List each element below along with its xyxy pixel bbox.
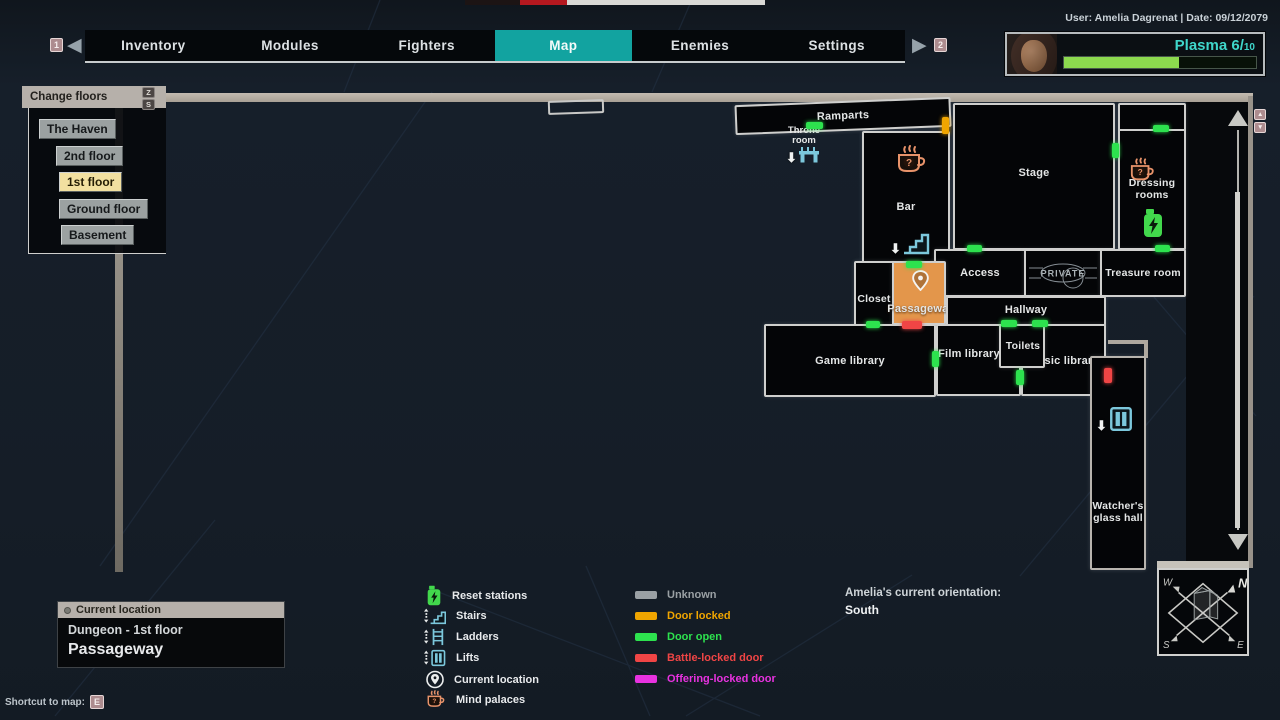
throne-room-transit-icon: ⬇ bbox=[786, 146, 822, 164]
plasma-label: Plasma bbox=[1175, 37, 1228, 54]
floor-keys: Z S bbox=[142, 87, 155, 110]
room-private: PRIVATE bbox=[1024, 249, 1102, 297]
legend-reset-stations: Reset stations bbox=[426, 585, 527, 606]
scroll-up-arrow[interactable] bbox=[1228, 110, 1248, 126]
map-shortcut-hint: Shortcut to map: E bbox=[5, 695, 104, 709]
room-bar: ? Bar ⬇ bbox=[862, 131, 950, 263]
private-logo: PRIVATE bbox=[1029, 256, 1097, 290]
door-battle-locked-marker bbox=[902, 321, 922, 329]
plasma-counter: Plasma 6/10 bbox=[1175, 37, 1255, 54]
legend-battle-locked-door: Battle-locked door bbox=[635, 652, 764, 664]
tab-enemies[interactable]: Enemies bbox=[632, 30, 769, 61]
legend-ladders: Ladders bbox=[424, 628, 499, 646]
room-dressing-rooms: ? Dressing rooms bbox=[1118, 103, 1186, 250]
dressing-divider-wall bbox=[1120, 129, 1184, 131]
legend-stairs: Stairs bbox=[424, 607, 487, 625]
avatar-shade bbox=[1007, 34, 1057, 74]
location-floor-text: Dungeon - 1st floor bbox=[68, 623, 274, 637]
floor-button-the-haven[interactable]: The Haven bbox=[39, 119, 116, 139]
legend-label: Door open bbox=[667, 631, 722, 643]
map-east-wall bbox=[1248, 96, 1253, 568]
door-swatch bbox=[635, 675, 657, 683]
legend-door-locked: Door locked bbox=[635, 610, 731, 622]
floor-button-basement[interactable]: Basement bbox=[61, 225, 134, 245]
compass-rose-icon: N E S W bbox=[1159, 570, 1247, 654]
avatar bbox=[1007, 34, 1057, 74]
sliver-dark-segment bbox=[465, 0, 520, 5]
orientation-label: Amelia's current orientation: bbox=[845, 587, 1001, 599]
door-open-marker bbox=[1032, 320, 1048, 327]
room-label: Access bbox=[936, 267, 1024, 280]
down-arrow-icon: ⬇ bbox=[1096, 419, 1107, 432]
room-access: Access bbox=[934, 249, 1026, 297]
door-locked-marker bbox=[942, 117, 949, 134]
private-text: PRIVATE bbox=[1041, 269, 1086, 279]
scroll-up-key-badge: ▲ bbox=[1254, 109, 1266, 120]
stairs-icon bbox=[424, 607, 446, 625]
compass-e: E bbox=[1237, 640, 1244, 651]
room-label: Hallway bbox=[948, 304, 1104, 317]
door-open-marker bbox=[1155, 245, 1170, 252]
lift-down-icon-group: ⬇ bbox=[1096, 406, 1134, 432]
svg-text:?: ? bbox=[906, 158, 912, 169]
location-room-text: Passageway bbox=[68, 641, 274, 659]
room-toilets: Toilets bbox=[999, 324, 1045, 368]
mind-palace-icon: ? bbox=[892, 145, 928, 177]
legend-label: Lifts bbox=[456, 652, 479, 664]
tab-inventory[interactable]: Inventory bbox=[85, 30, 222, 61]
legend-offering-locked-door: Offering-locked door bbox=[635, 673, 776, 685]
room-hallway: Hallway bbox=[946, 296, 1106, 326]
door-battle-locked-marker bbox=[1104, 368, 1112, 383]
room-game-library: Game library bbox=[764, 324, 936, 397]
floor-button-1st-floor[interactable]: 1st floor bbox=[59, 172, 122, 192]
legend-label: Stairs bbox=[456, 610, 487, 622]
door-swatch bbox=[635, 633, 657, 641]
room-label: Stage bbox=[955, 167, 1113, 180]
door-swatch bbox=[635, 654, 657, 662]
door-open-marker bbox=[806, 122, 823, 129]
compass-s: S bbox=[1163, 640, 1170, 651]
scroll-down-key-badge: ▼ bbox=[1254, 122, 1266, 133]
room-closet: Closet bbox=[854, 261, 894, 330]
prev-tab-key-badge: 1 bbox=[50, 38, 63, 52]
tab-modules[interactable]: Modules bbox=[222, 30, 359, 61]
unexplored-room-outline bbox=[548, 99, 604, 115]
player-status-panel: Plasma 6/10 bbox=[1005, 32, 1265, 76]
throne-icon bbox=[798, 146, 822, 164]
current-location-header: Current location bbox=[58, 602, 284, 618]
room-throne-label: Throne room bbox=[778, 126, 830, 147]
scroll-down-arrow[interactable] bbox=[1228, 534, 1248, 550]
room-label: Bar bbox=[864, 201, 948, 214]
floor-down-key-badge: S bbox=[142, 99, 155, 110]
compass-w: W bbox=[1163, 578, 1173, 589]
orientation-value: South bbox=[845, 603, 879, 617]
floor-button-ground-floor[interactable]: Ground floor bbox=[59, 199, 148, 219]
legend-door-open: Door open bbox=[635, 631, 722, 643]
stairs-icon bbox=[902, 229, 930, 255]
room-label: Ramparts bbox=[737, 106, 949, 127]
svg-text:?: ? bbox=[1138, 167, 1143, 177]
plasma-value: 6 bbox=[1231, 37, 1239, 54]
floor-up-key-badge: Z bbox=[142, 87, 155, 98]
lift-icon bbox=[424, 649, 446, 667]
room-label: Toilets bbox=[993, 340, 1053, 352]
map-north-wall bbox=[115, 93, 1253, 102]
shortcut-label: Shortcut to map: bbox=[5, 697, 85, 708]
next-tab-key-badge: 2 bbox=[934, 38, 947, 52]
next-tab-arrow-icon[interactable]: ▶ bbox=[912, 34, 927, 57]
mind-palace-icon: ? bbox=[424, 690, 446, 710]
room-label: Treasure room bbox=[1102, 267, 1184, 279]
location-pin-icon bbox=[426, 670, 444, 689]
room-treasure: Treasure room bbox=[1100, 249, 1186, 297]
compass-panel: N E S W bbox=[1157, 568, 1249, 656]
game-screen: User: Amelia Dagrenat | Date: 09/12/2079… bbox=[0, 0, 1280, 720]
door-open-marker bbox=[866, 321, 880, 328]
location-dot-icon bbox=[64, 607, 71, 614]
door-open-marker bbox=[1153, 125, 1169, 132]
tab-map[interactable]: Map bbox=[495, 30, 632, 61]
room-label: Game library bbox=[766, 355, 934, 368]
prev-tab-arrow-icon[interactable]: ◀ bbox=[67, 34, 82, 57]
change-floors-panel: The Haven 2nd floor 1st floor Ground flo… bbox=[28, 108, 166, 254]
lift-icon bbox=[1108, 406, 1134, 432]
door-open-marker bbox=[1112, 143, 1119, 158]
legend-label: Offering-locked door bbox=[667, 673, 776, 685]
room-label: Watcher's glass hall bbox=[1092, 500, 1144, 524]
legend-label: Reset stations bbox=[452, 590, 527, 602]
svg-text:?: ? bbox=[433, 698, 437, 705]
tab-settings[interactable]: Settings bbox=[768, 30, 905, 61]
change-floors-title: Change floors bbox=[30, 91, 107, 103]
room-stage: Stage bbox=[953, 103, 1115, 250]
sliver-light-segment bbox=[567, 0, 765, 5]
door-open-marker bbox=[932, 351, 939, 367]
shortcut-key-badge: E bbox=[90, 695, 104, 709]
room-passageway-current: Passageway bbox=[892, 261, 946, 325]
reset-station-icon bbox=[426, 585, 442, 606]
room-label: Dressing rooms bbox=[1120, 177, 1184, 201]
horizontal-scroll-thumb[interactable] bbox=[1157, 561, 1249, 568]
legend-current-location: Current location bbox=[426, 670, 539, 689]
current-location-panel: Current location Dungeon - 1st floor Pas… bbox=[57, 601, 285, 668]
door-open-marker bbox=[967, 245, 982, 252]
legend-lifts: Lifts bbox=[424, 649, 479, 667]
stairs-down-icon-group: ⬇ bbox=[890, 229, 930, 255]
legend-label: Mind palaces bbox=[456, 694, 525, 706]
legend-label: Battle-locked door bbox=[667, 652, 764, 664]
floor-button-2nd-floor[interactable]: 2nd floor bbox=[56, 146, 123, 166]
vertical-scroll-thumb[interactable] bbox=[1235, 192, 1240, 528]
plasma-max: 10 bbox=[1244, 42, 1255, 53]
sliver-red-segment bbox=[520, 0, 567, 5]
down-arrow-icon: ⬇ bbox=[786, 151, 797, 164]
down-arrow-icon: ⬇ bbox=[890, 242, 901, 255]
user-date-text: User: Amelia Dagrenat | Date: 09/12/2079 bbox=[1065, 12, 1268, 24]
tab-bar: Inventory Modules Fighters Map Enemies S… bbox=[85, 30, 905, 63]
door-swatch bbox=[635, 591, 657, 599]
door-open-marker bbox=[1016, 370, 1024, 385]
legend-label: Current location bbox=[454, 674, 539, 686]
legend-label: Ladders bbox=[456, 631, 499, 643]
plasma-bar-fill bbox=[1064, 57, 1179, 68]
ladder-icon bbox=[424, 628, 446, 646]
door-open-marker bbox=[1001, 320, 1017, 327]
top-progress-sliver bbox=[465, 0, 765, 5]
legend-unknown: Unknown bbox=[635, 589, 717, 601]
reset-station-icon bbox=[1142, 207, 1164, 239]
tab-fighters[interactable]: Fighters bbox=[358, 30, 495, 61]
scroll-key-hints: ▲ ▼ bbox=[1254, 109, 1266, 133]
location-pin-icon bbox=[912, 270, 929, 291]
door-swatch bbox=[635, 612, 657, 620]
plasma-bar bbox=[1063, 56, 1257, 69]
legend-label: Unknown bbox=[667, 589, 717, 601]
room-watchers-glass-hall: ⬇ Watcher's glass hall bbox=[1090, 356, 1146, 570]
compass-n: N bbox=[1238, 577, 1247, 591]
door-open-marker bbox=[906, 261, 922, 268]
legend-label: Door locked bbox=[667, 610, 731, 622]
current-location-title: Current location bbox=[76, 604, 161, 616]
legend-mind-palaces: ? Mind palaces bbox=[424, 690, 525, 710]
